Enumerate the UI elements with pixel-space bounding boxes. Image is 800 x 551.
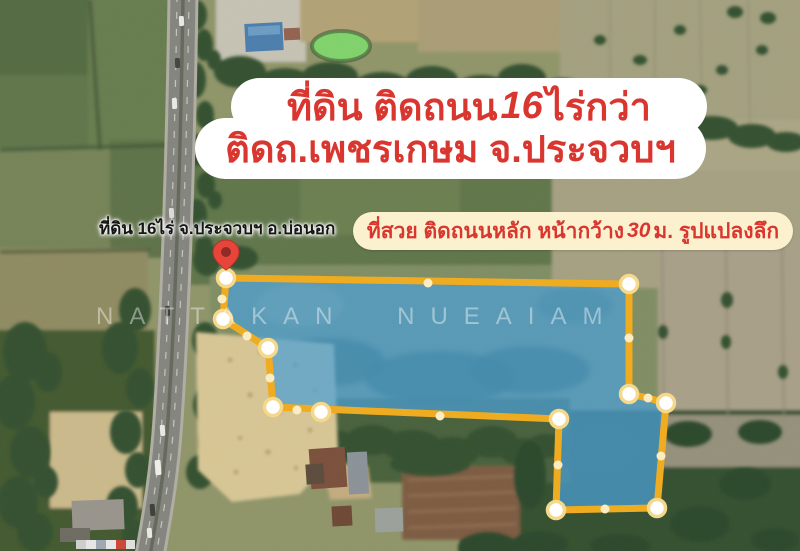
plot-dot [260, 340, 277, 357]
plot-dot [313, 404, 330, 421]
headline-line1-prefix: ที่ดิน ติดถนน [287, 76, 498, 137]
plot-dot [554, 461, 563, 470]
plot-dot [601, 505, 610, 514]
plot-dot [424, 279, 433, 288]
plot-dot [551, 411, 568, 428]
plot-dot [657, 452, 666, 461]
plot-dot [625, 334, 634, 343]
feature-width-number: 30 [624, 219, 653, 243]
plot-dot [644, 394, 653, 403]
feature-prefix: ที่สวย ติดถนนหลัก หน้ากว้าง [367, 215, 624, 248]
plot-dot [621, 386, 638, 403]
pin-label: ที่ดิน 16ไร่ จ.ประจวบฯ อ.บ่อนอก [99, 215, 361, 242]
headline-line1: ที่ดิน ติดถนน 16 ไร่กว่า [231, 78, 707, 135]
watermark-text: NATTAKAN NUEAIAM [96, 303, 618, 331]
headline-line1-suffix: ไร่กว่า [546, 76, 651, 137]
feature-suffix: ม. รูปแปลงลึก [653, 215, 779, 248]
plot-dot [218, 270, 235, 287]
plot-dot [649, 500, 666, 517]
plot-dot [621, 276, 638, 293]
plot-dot [266, 374, 275, 383]
plot-dot [548, 502, 565, 519]
plot-dot [658, 395, 675, 412]
plot-dot [243, 332, 252, 341]
plot-dot [265, 399, 282, 416]
headline-area-number: 16 [498, 85, 546, 128]
feature-banner: ที่สวย ติดถนนหลัก หน้ากว้าง 30 ม. รูปแปล… [353, 212, 793, 250]
land-listing-image: NATTAKAN NUEAIAM ติดถ.เพชรเกษม จ.ประจวบฯ… [0, 0, 800, 551]
plot-dot [436, 412, 445, 421]
plot-dot [293, 406, 302, 415]
